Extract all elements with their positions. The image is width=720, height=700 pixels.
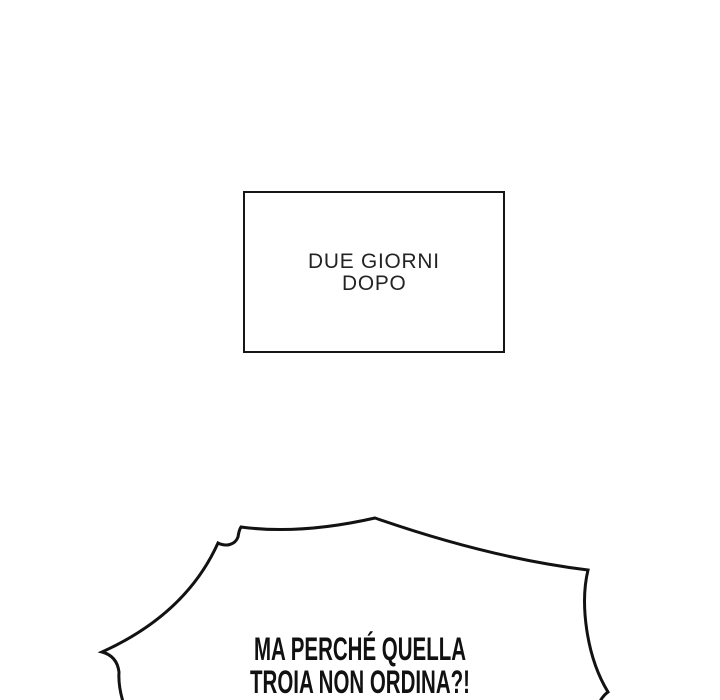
speech-bubble-text: MA PERCHÉ QUELLA TROIA NON ORDINA?! xyxy=(232,633,488,699)
comic-panel: DUE GIORNI DOPO MA PERCHÉ QUELLA TROIA N… xyxy=(0,0,720,700)
speech-text-line-1: MA PERCHÉ QUELLA xyxy=(232,633,488,666)
speech-text-line-2: TROIA NON ORDINA?! xyxy=(232,666,488,699)
speech-bubble xyxy=(0,0,720,700)
